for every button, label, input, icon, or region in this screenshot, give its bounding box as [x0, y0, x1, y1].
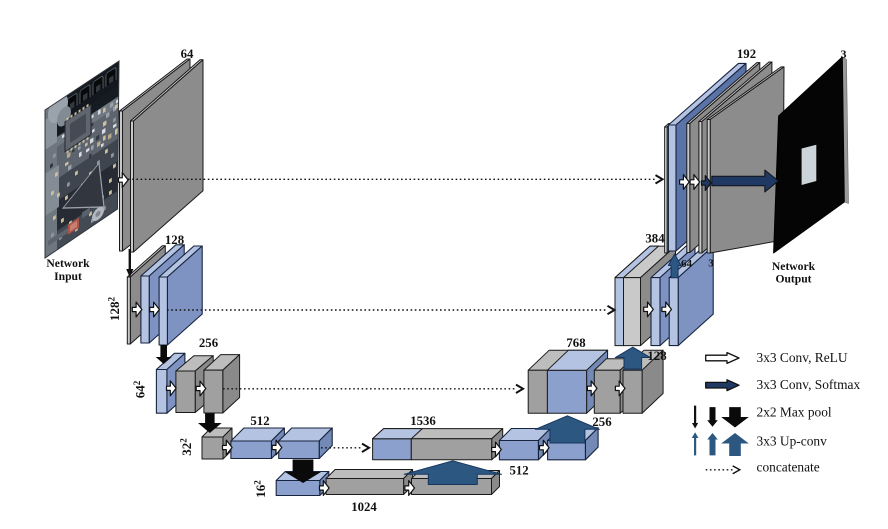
svg-text:3x3 Conv, ReLU: 3x3 Conv, ReLU	[757, 350, 848, 365]
svg-text:192: 192	[737, 47, 756, 61]
svg-text:3x3 Up-conv: 3x3 Up-conv	[757, 434, 828, 449]
svg-text:256: 256	[199, 336, 219, 350]
svg-text:concatenate: concatenate	[757, 460, 820, 475]
svg-text:128: 128	[647, 349, 666, 363]
svg-text:3x3 Conv, Softmax: 3x3 Conv, Softmax	[757, 377, 861, 392]
svg-text:128: 128	[165, 233, 184, 247]
svg-text:1024: 1024	[351, 500, 377, 514]
svg-text:Network: Network	[46, 257, 90, 270]
svg-text:Output: Output	[775, 272, 811, 285]
svg-text:1536: 1536	[410, 414, 436, 428]
svg-text:512: 512	[510, 464, 529, 478]
svg-text:3: 3	[841, 47, 847, 61]
svg-text:64: 64	[181, 47, 194, 61]
svg-text:Input: Input	[54, 270, 82, 283]
svg-text:256: 256	[592, 415, 612, 429]
svg-text:3: 3	[708, 258, 714, 270]
svg-text:768: 768	[566, 336, 585, 350]
svg-text:512: 512	[250, 414, 269, 428]
svg-text:384: 384	[645, 232, 665, 246]
svg-text:Network: Network	[772, 260, 816, 273]
svg-text:2x2 Max pool: 2x2 Max pool	[757, 405, 832, 420]
svg-text:64: 64	[681, 258, 693, 270]
